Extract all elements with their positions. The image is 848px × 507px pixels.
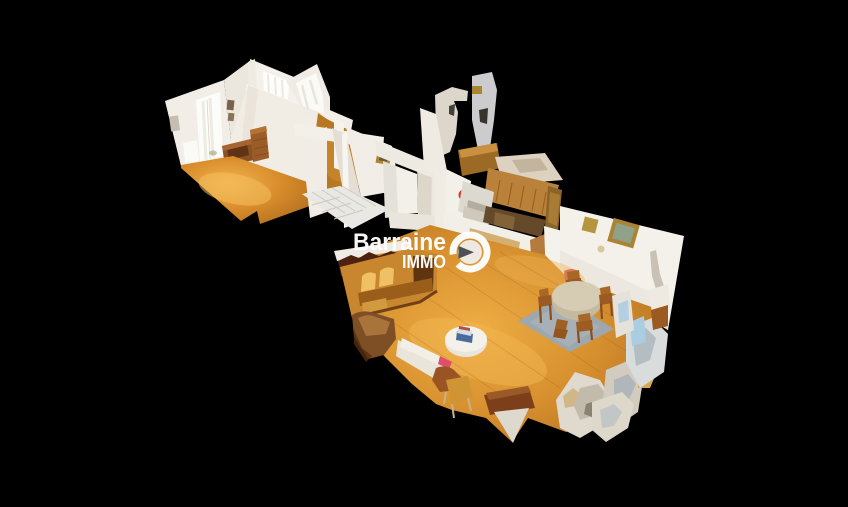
svg-text:IMMO: IMMO (402, 252, 446, 272)
